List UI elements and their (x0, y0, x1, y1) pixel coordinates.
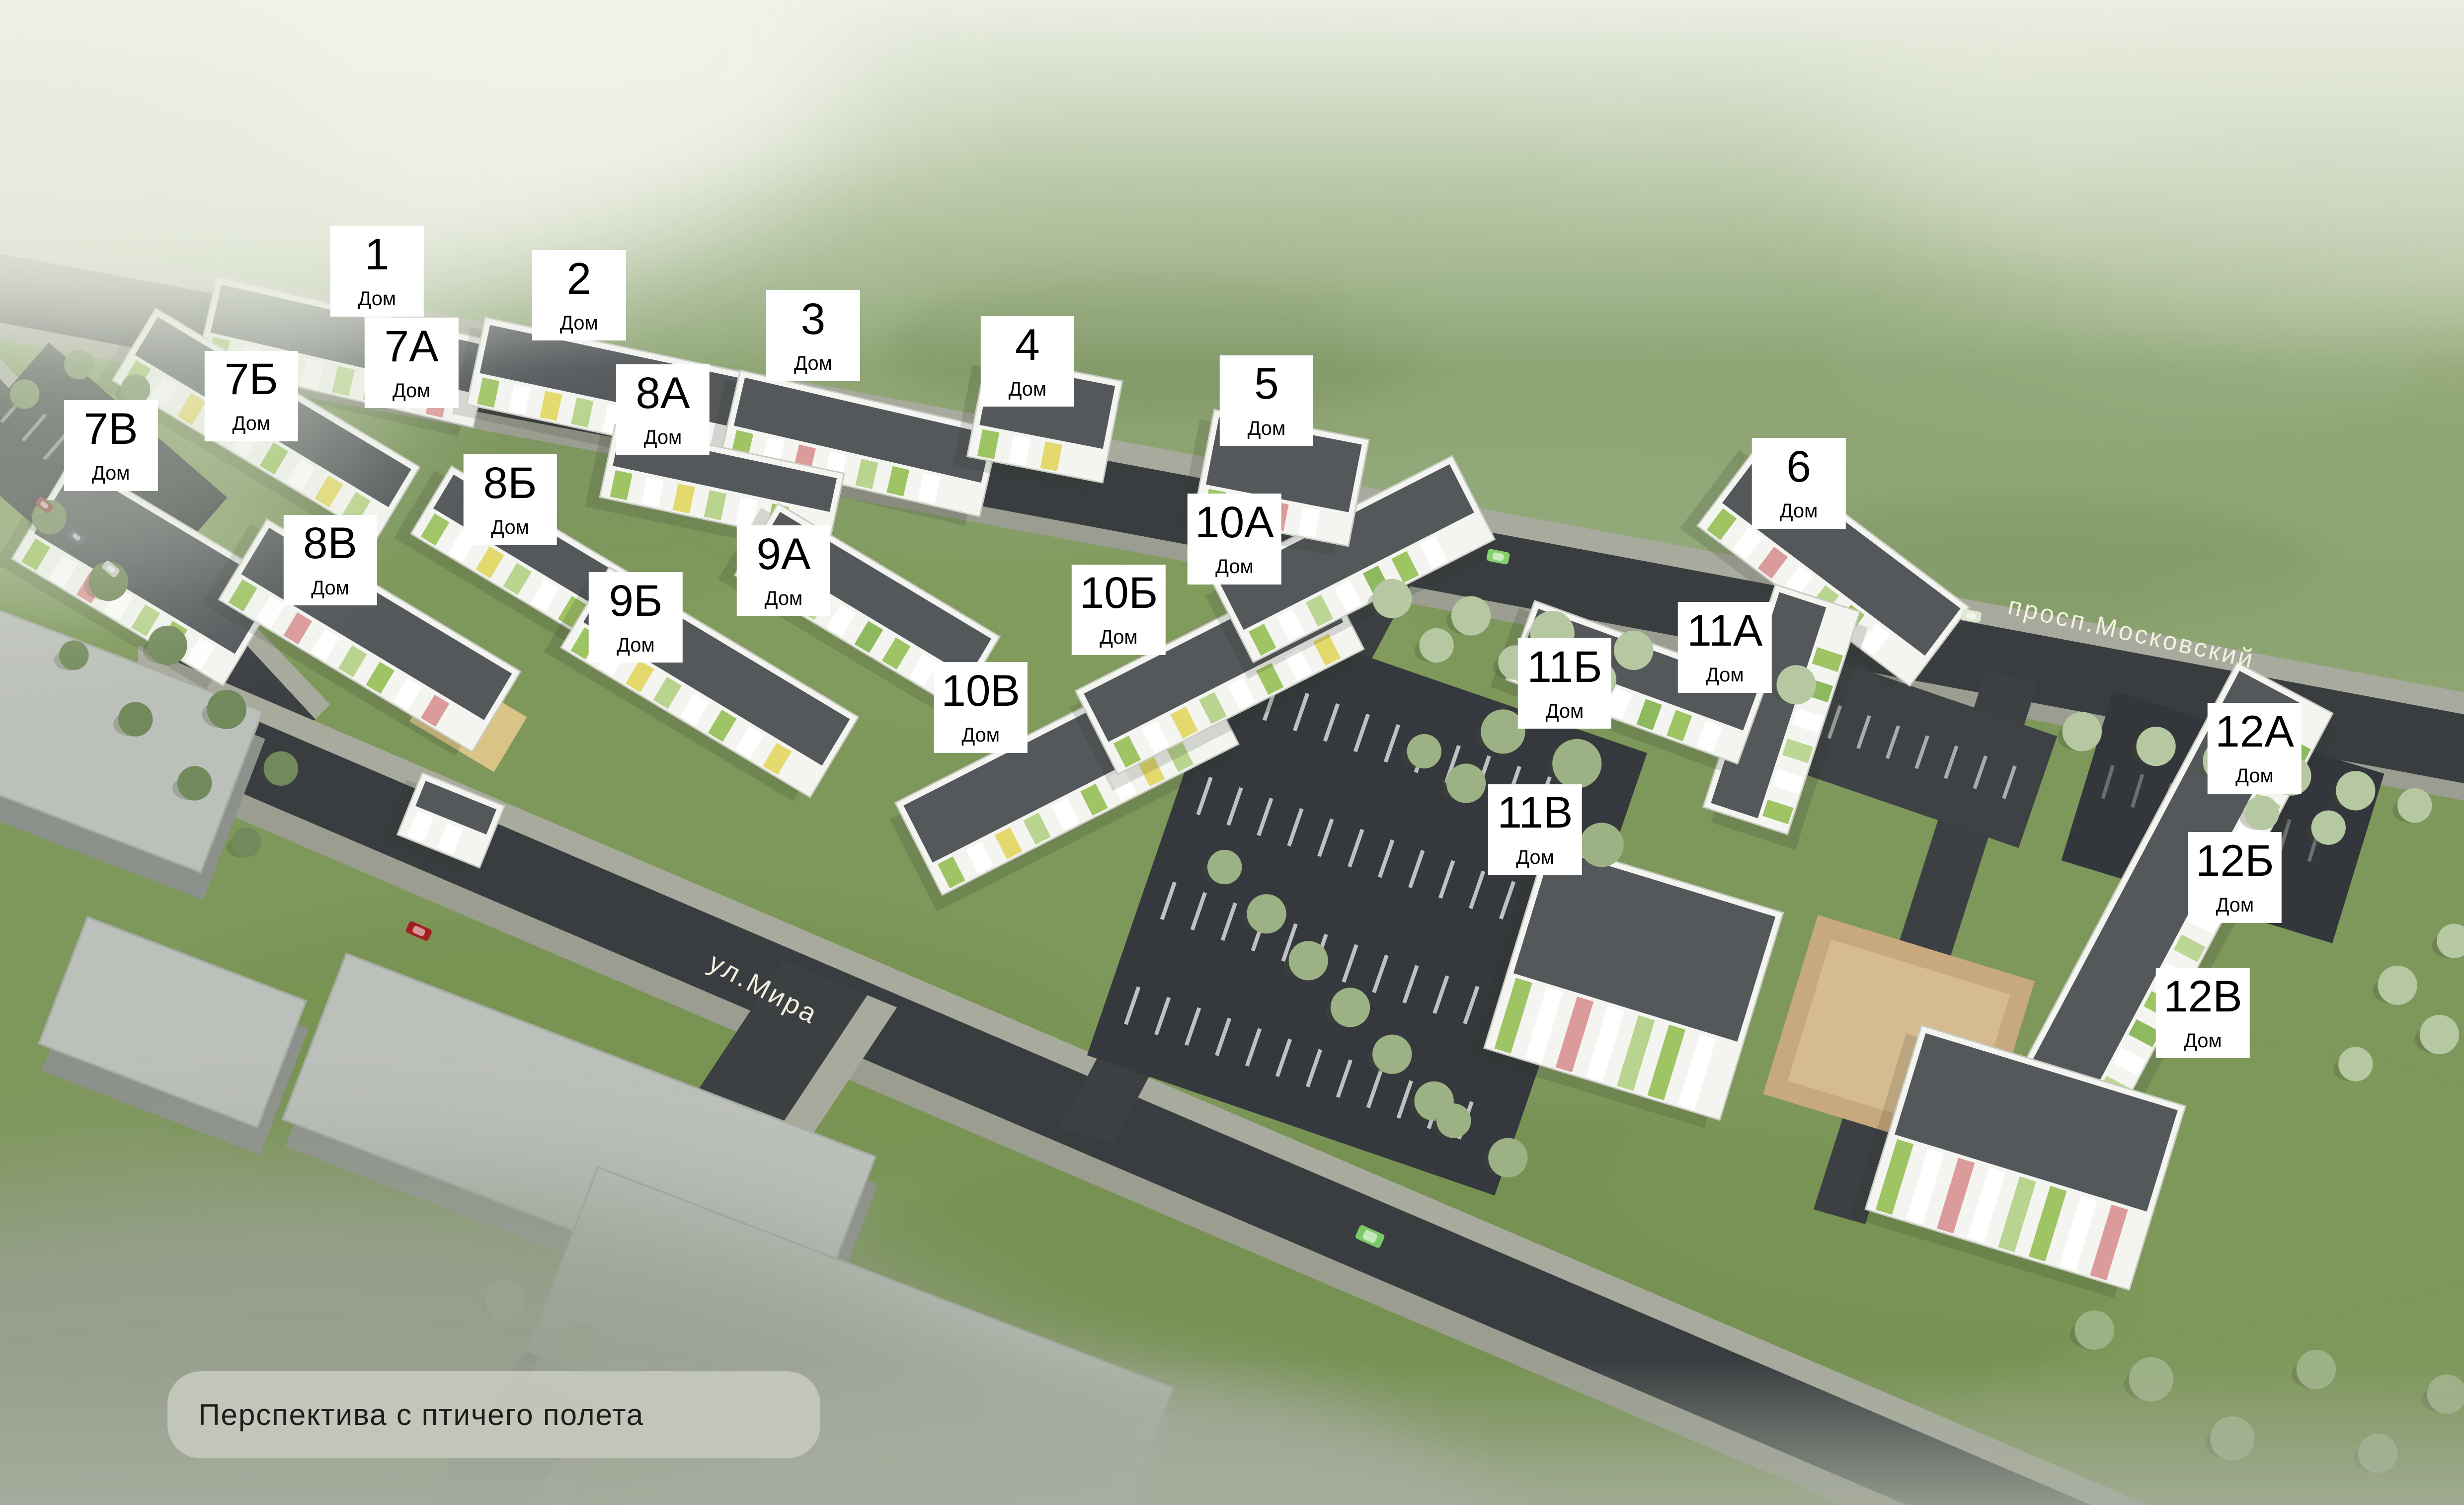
building-sublabel: Дом (2184, 1031, 2222, 1051)
building-label-9a: 9АДом (737, 525, 830, 616)
building-label-10v: 10ВДом (934, 662, 1027, 752)
tree (1488, 1138, 1527, 1177)
tree (264, 752, 298, 786)
building-sublabel: Дом (1706, 666, 1744, 685)
building-number: 5 (1254, 361, 1279, 406)
tree (1247, 894, 1286, 933)
tree (1436, 1103, 1471, 1138)
building-sublabel: Дом (765, 589, 803, 609)
tree (2136, 727, 2175, 766)
tree (232, 828, 261, 857)
building-number: 7В (84, 407, 138, 451)
building-sublabel: Дом (311, 579, 349, 598)
tree (2063, 712, 2102, 751)
building-number: 11В (1497, 790, 1573, 835)
tree (1372, 1034, 1412, 1074)
tree (148, 626, 187, 665)
building-number: 8Б (483, 461, 537, 505)
building-number: 11А (1687, 608, 1762, 653)
tree (1372, 579, 1412, 618)
building-number: 9А (756, 532, 810, 576)
tree (118, 702, 153, 736)
tree (2074, 1310, 2114, 1349)
building-number: 1 (365, 232, 390, 276)
building-label-12a: 12АДом (2208, 703, 2301, 793)
building-sublabel: Дом (358, 289, 396, 309)
building-number: 8В (303, 521, 357, 565)
building-label-11b: 11БДом (1518, 638, 1611, 729)
tree (207, 690, 246, 729)
building-sublabel: Дом (2216, 896, 2254, 916)
tree (177, 766, 212, 800)
building-label-7a: 7АДом (365, 318, 458, 408)
building-sublabel: Дом (617, 636, 655, 656)
tree (2420, 1015, 2459, 1054)
building-label-11v: 11ВДом (1488, 784, 1582, 875)
building-label-10a: 10АДом (1188, 494, 1281, 584)
building-sublabel: Дом (1546, 702, 1584, 722)
building-number: 10А (1195, 500, 1274, 544)
building-number: 3 (801, 297, 826, 341)
caption-pill: Перспектива с птичего полета (167, 1371, 820, 1459)
tree (2311, 810, 2346, 844)
building-number: 2 (567, 256, 592, 301)
building-label-8a: 8АДом (616, 364, 710, 455)
tree (1446, 763, 1486, 803)
building-label-4: 4Дом (981, 316, 1074, 407)
building-label-7b: 7БДом (205, 351, 298, 441)
building-number: 10В (941, 669, 1020, 713)
building-number: 9Б (609, 579, 662, 623)
building-number: 12В (2163, 974, 2242, 1018)
tree (1331, 988, 1370, 1027)
building-number: 4 (1015, 323, 1040, 367)
building-sublabel: Дом (1248, 419, 1286, 439)
building-label-2: 2Дом (532, 250, 626, 340)
building-sublabel: Дом (794, 354, 832, 374)
building-sublabel: Дом (961, 726, 1000, 746)
tree (1407, 734, 1441, 768)
building-label-6: 6Дом (1752, 438, 1845, 528)
building-label-9b: 9БДом (589, 572, 682, 663)
building-sublabel: Дом (393, 381, 431, 401)
tree (1580, 823, 1624, 867)
building-label-5: 5Дом (1220, 355, 1313, 446)
tree (1289, 941, 1328, 980)
building-number: 7Б (225, 357, 278, 401)
building-number: 12А (2215, 709, 2294, 753)
building-label-12v: 12ВДом (2156, 968, 2249, 1058)
building-label-10b: 10БДом (1072, 565, 1165, 655)
tree (59, 641, 89, 670)
caption-text: Перспектива с птичего полета (198, 1397, 644, 1432)
tree (2397, 788, 2432, 823)
tree (2336, 771, 2375, 810)
tree (1207, 850, 1242, 884)
building-sublabel: Дом (1780, 502, 1818, 521)
tree (2338, 1047, 2373, 1081)
building-label-7v: 7ВДом (64, 400, 158, 491)
tree (1451, 596, 1491, 635)
master-plan-render: 1Дом2Дом3Дом4Дом5Дом6Дом7АДом7БДом7ВДом8… (0, 0, 2464, 1505)
building-label-12b: 12БДом (2188, 832, 2282, 922)
building-sublabel: Дом (1516, 848, 1554, 868)
building-sublabel: Дом (233, 414, 271, 434)
building-sublabel: Дом (491, 518, 529, 538)
building-label-11a: 11АДом (1678, 602, 1771, 692)
building-label-8b: 8БДом (463, 454, 556, 545)
building-sublabel: Дом (1215, 557, 1254, 577)
building-sublabel: Дом (1009, 380, 1047, 400)
building-sublabel: Дом (2235, 766, 2274, 786)
building-sublabel: Дом (560, 314, 598, 334)
building-number: 7А (385, 324, 439, 368)
building-label-8v: 8ВДом (283, 515, 377, 605)
tree (1776, 665, 1816, 704)
tree (2378, 966, 2417, 1005)
tree (1614, 631, 1653, 670)
building-sublabel: Дом (92, 464, 130, 484)
building-number: 6 (1786, 444, 1811, 489)
tree (1552, 739, 1601, 788)
building-label-1: 1Дом (330, 226, 424, 316)
building-number: 8А (636, 371, 690, 415)
building-sublabel: Дом (1100, 628, 1138, 648)
building-number: 11Б (1527, 645, 1602, 689)
building-number: 10Б (1079, 571, 1158, 615)
building-label-3: 3Дом (766, 290, 860, 381)
tree (2245, 796, 2279, 830)
building-number: 12Б (2196, 838, 2274, 883)
building-sublabel: Дом (644, 428, 682, 448)
tree (1419, 628, 1453, 663)
